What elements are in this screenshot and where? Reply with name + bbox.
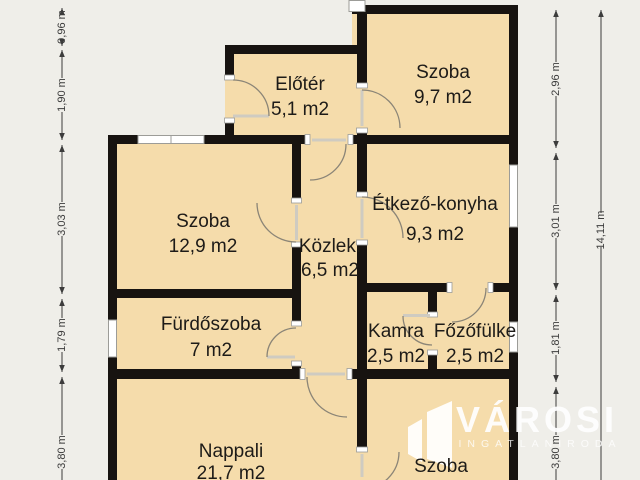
room-label-szoba-mid: Szoba <box>176 211 230 232</box>
watermark-brand: VÁROSI <box>456 399 618 440</box>
room-area-etkezo: 9,3 m2 <box>406 224 464 245</box>
room-label-eloter: Előtér <box>275 74 325 95</box>
window-top-corner <box>349 1 365 12</box>
room-label-nappali: Nappali <box>199 441 263 462</box>
room-area-fozofulke: 2,5 m2 <box>446 346 504 367</box>
room-area-szoba-top: 9,7 m2 <box>414 87 472 108</box>
wall-top <box>352 5 518 14</box>
dim-left-5: 3,80 m <box>56 435 68 469</box>
room-eloter <box>225 45 367 145</box>
watermark-tagline: INGATLANIRODA <box>459 438 622 450</box>
room-area-eloter: 5,1 m2 <box>271 99 329 120</box>
room-label-furdoszoba: Fürdőszoba <box>161 314 262 335</box>
wall-etkezo-bottom <box>357 283 518 292</box>
dim-total: 14,11 m <box>595 211 607 250</box>
wall-left-outer <box>108 135 117 480</box>
room-area-szoba-mid: 12,9 m2 <box>169 236 238 257</box>
floorplan-image: 0,96 m 1,90 m 3,03 m 1,79 m 3,80 m 2,96 … <box>0 0 640 480</box>
room-label-kozlek: Közlek. <box>299 236 361 257</box>
dim-right-3: 1,81 m <box>550 321 562 355</box>
window-furdoszoba <box>109 320 117 357</box>
dim-right-1: 2,96 m <box>550 62 562 96</box>
window-etkezo <box>510 165 518 227</box>
dim-left-4: 1,79 m <box>56 318 68 352</box>
wall-szoba129-bottom <box>108 289 301 298</box>
room-area-furdoszoba: 7 m2 <box>190 340 232 361</box>
dim-right-2: 3,01 m <box>550 204 562 238</box>
room-label-szoba-bottom: Szoba <box>414 456 468 477</box>
window-szoba129-a <box>138 136 171 144</box>
wall-eloter-top <box>225 45 367 54</box>
room-area-nappali: 21,7 m2 <box>197 463 266 480</box>
room-label-etkezo: Étkező-konyha <box>372 194 498 215</box>
dim-left-1: 0,96 m <box>56 10 68 44</box>
room-label-kamra: Kamra <box>368 321 424 342</box>
dim-left-2: 1,90 m <box>56 78 68 112</box>
room-area-kozlek: 6,5 m2 <box>301 260 359 281</box>
room-label-fozofulke: Főzőfülke <box>434 321 516 342</box>
room-label-szoba-top: Szoba <box>416 62 470 83</box>
window-szoba129-b <box>171 136 204 144</box>
floorplan-page: 0,96 m 1,90 m 3,03 m 1,79 m 3,80 m 2,96 … <box>0 0 640 480</box>
dim-left-3: 3,03 m <box>56 202 68 236</box>
room-area-kamra: 2,5 m2 <box>367 346 425 367</box>
